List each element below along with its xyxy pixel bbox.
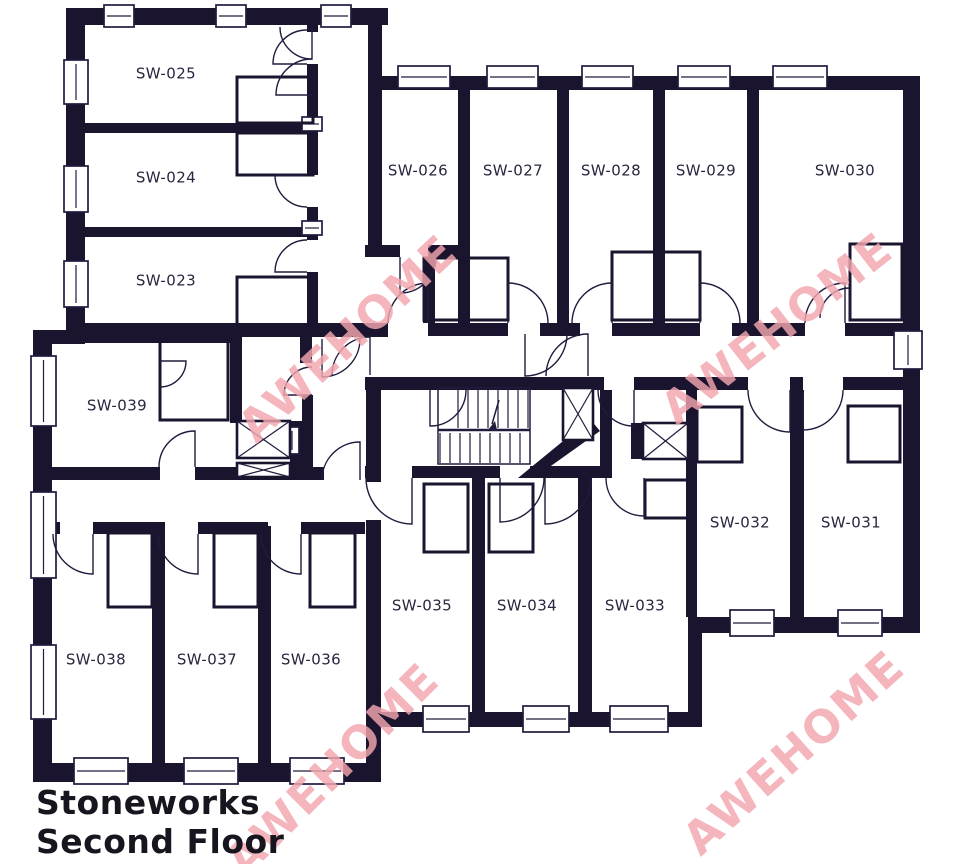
floor-plan-drawing: SW-023SW-024SW-025SW-026SW-027SW-028SW-0…: [0, 0, 962, 864]
wall-segment: [365, 466, 381, 478]
wall-segment: [52, 467, 160, 480]
room-label: SW-028: [581, 162, 641, 180]
closet: [108, 533, 152, 607]
window: [678, 66, 730, 88]
room-label: SW-025: [136, 65, 196, 83]
window: [74, 758, 128, 784]
window: [398, 66, 450, 88]
window: [64, 60, 88, 104]
room-label: SW-031: [821, 514, 881, 532]
window: [64, 261, 88, 307]
window: [216, 5, 246, 27]
window: [582, 66, 633, 88]
room-label: SW-035: [392, 597, 452, 615]
walls-layer: [33, 8, 920, 782]
door-arcs-layer: [53, 27, 850, 574]
wall-segment: [790, 377, 803, 390]
door-swing: [572, 283, 612, 323]
room-label: SW-023: [136, 272, 196, 290]
window: [423, 706, 469, 732]
wall-segment: [472, 478, 485, 712]
watermark: AWEHOME: [672, 639, 915, 864]
closet: [645, 480, 688, 518]
window: [184, 758, 238, 784]
wall-segment: [365, 245, 400, 257]
window: [64, 166, 88, 212]
window: [730, 610, 774, 636]
wall-segment: [557, 90, 569, 323]
door-swing: [606, 478, 644, 516]
door-swing: [159, 431, 195, 467]
closet: [424, 484, 468, 552]
window: [487, 66, 538, 88]
closet: [310, 533, 355, 607]
floor-plan-page: SW-023SW-024SW-025SW-026SW-027SW-028SW-0…: [0, 0, 962, 864]
elevator-shaft: [237, 463, 290, 477]
wall-segment: [368, 8, 382, 257]
wall-segment: [688, 617, 920, 633]
window: [838, 610, 882, 636]
window: [773, 66, 827, 88]
wall-segment: [458, 90, 470, 323]
watermark: AWEHOME: [228, 224, 468, 453]
wall-segment: [631, 423, 643, 459]
window: [31, 645, 56, 719]
room-label: SW-037: [177, 651, 237, 669]
door-swing: [430, 390, 466, 426]
plan-title-line1: Stoneworks: [36, 783, 284, 822]
wall-segment: [152, 526, 165, 766]
wall-segment: [843, 377, 920, 390]
room-label: SW-038: [66, 651, 126, 669]
room-label: SW-032: [710, 514, 770, 532]
wall-segment: [540, 323, 580, 336]
door-swing: [366, 478, 412, 524]
door-swing: [275, 240, 307, 272]
wall-segment: [428, 323, 508, 336]
room-label: SW-027: [483, 162, 543, 180]
window: [894, 331, 922, 369]
door-swing: [275, 175, 307, 207]
door-swing: [273, 30, 307, 64]
window: [302, 221, 322, 235]
staircase: [438, 388, 530, 464]
closet: [214, 533, 258, 607]
room-label: SW-030: [815, 162, 875, 180]
room-label: SW-034: [497, 597, 557, 615]
room-label: SW-029: [676, 162, 736, 180]
wall-segment: [600, 390, 612, 478]
wall-segment: [412, 466, 500, 478]
plan-title: Stoneworks Second Floor: [36, 783, 284, 861]
wall-segment: [578, 478, 592, 712]
wall-segment: [258, 526, 271, 766]
room-label: SW-026: [388, 162, 448, 180]
room-label: SW-024: [136, 169, 196, 187]
elevator-shaft: [563, 388, 593, 440]
window: [321, 5, 351, 27]
room-label: SW-033: [605, 597, 665, 615]
wall-segment: [790, 390, 804, 617]
door-swing: [803, 390, 843, 430]
closet: [237, 77, 313, 123]
door-swing: [322, 442, 360, 480]
closet: [848, 406, 900, 462]
wall-segment: [371, 76, 920, 90]
door-swing: [53, 534, 93, 574]
wall-segment: [688, 617, 702, 727]
window: [31, 356, 56, 426]
window: [31, 492, 56, 578]
closet: [237, 133, 313, 175]
wall-segment: [83, 227, 307, 237]
room-label: SW-039: [87, 397, 147, 415]
window: [523, 706, 569, 732]
closet: [489, 484, 533, 552]
wall-segment: [612, 323, 700, 336]
door-swing: [700, 283, 740, 323]
closet: [160, 340, 228, 420]
door-swing: [546, 334, 588, 376]
door-swing: [748, 390, 790, 432]
door-swing: [160, 361, 186, 387]
door-swing: [508, 283, 548, 323]
wall-segment: [747, 90, 759, 323]
window: [104, 5, 134, 27]
plan-title-line2: Second Floor: [36, 822, 284, 861]
wall-segment: [653, 90, 665, 323]
window: [610, 706, 668, 732]
room-label: SW-036: [281, 651, 341, 669]
